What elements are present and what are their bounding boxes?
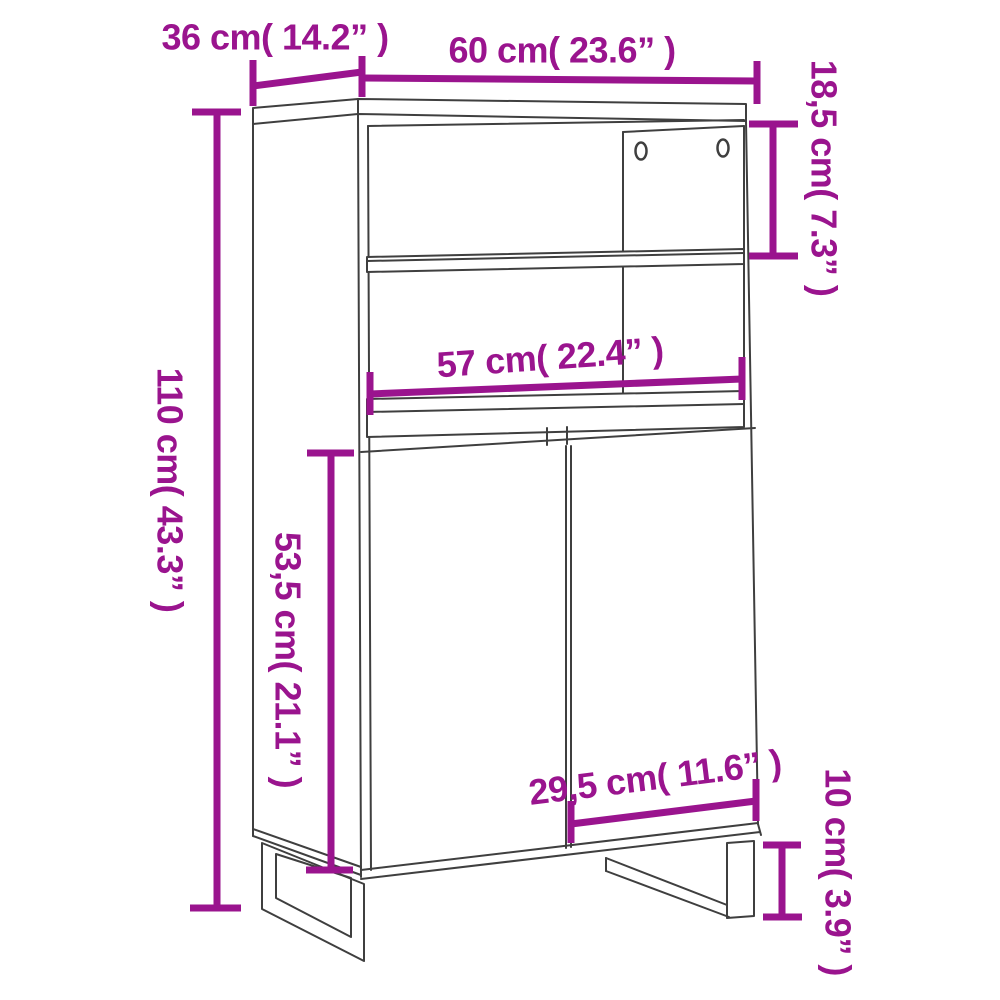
label-leg-height: 10 cm( 3.9” ) xyxy=(818,768,859,976)
dim-line xyxy=(362,78,757,81)
right-leg-bar-top xyxy=(606,858,727,905)
right-leg-front-post xyxy=(727,841,754,918)
label-top-width: 60 cm( 23.6” ) xyxy=(448,30,675,71)
front-right-outer-edge xyxy=(746,121,758,824)
dimension-upper-compartment-18-5cm xyxy=(749,124,798,256)
mounting-hole-icon xyxy=(636,143,647,160)
mounting-hole-icon xyxy=(718,140,729,157)
under-top-edge xyxy=(368,120,744,126)
label-total-height: 110 cm( 43.3” ) xyxy=(150,368,191,613)
back-panel-top-edge xyxy=(623,126,744,132)
middle-panel xyxy=(367,391,744,437)
dimension-diagram: 36 cm( 14.2” ) 60 cm( 23.6” ) 18,5 cm( 7… xyxy=(0,0,1000,1000)
front-left-outer-edge xyxy=(358,114,361,877)
dimension-total-height-110cm xyxy=(190,112,241,908)
door-bottom-edge xyxy=(361,823,758,870)
dimension-top-depth-36cm xyxy=(253,56,362,106)
bottom-right-corner xyxy=(758,824,761,835)
label-top-depth: 36 cm( 14.2” ) xyxy=(161,17,388,58)
dimension-leg-height-10cm xyxy=(763,845,802,917)
right-leg-bar-bottom xyxy=(606,871,729,917)
front-left-inner-edge xyxy=(368,126,371,870)
label-upper-compartment-height: 18,5 cm( 7.3” ) xyxy=(804,60,845,297)
left-leg-outer xyxy=(262,843,364,961)
label-door-section-height: 53,5 cm( 21.1” ) xyxy=(268,532,309,788)
dim-line xyxy=(253,72,362,86)
dimension-door-section-53-5cm xyxy=(306,453,354,870)
label-inner-shelf-width: 57 cm( 22.4” ) xyxy=(435,329,664,386)
bottom-panel-edge xyxy=(361,832,760,879)
